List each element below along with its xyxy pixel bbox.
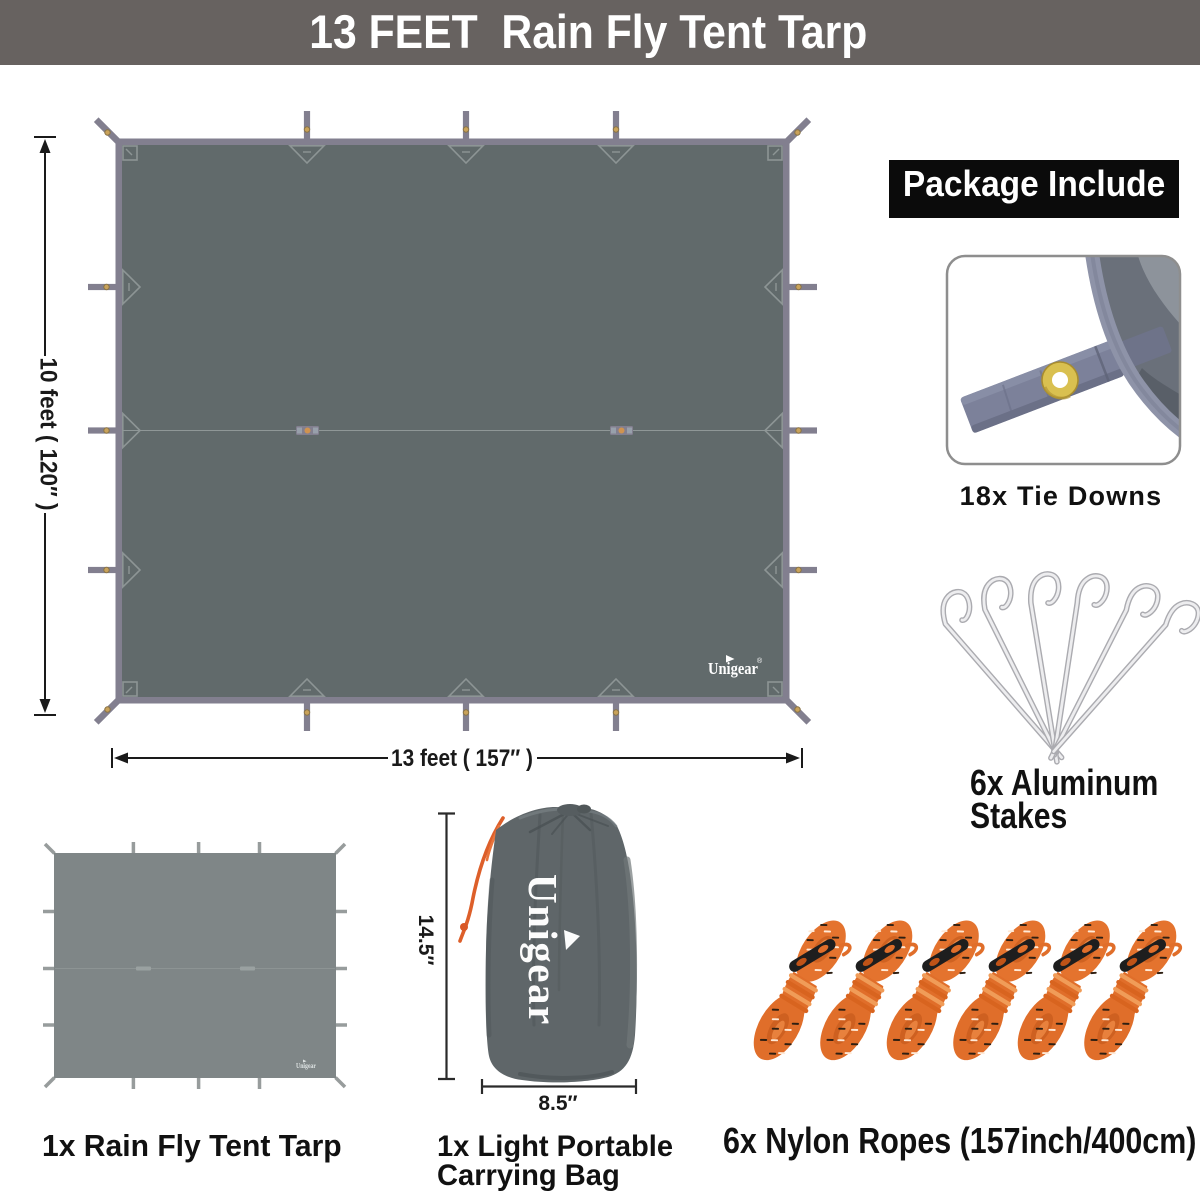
svg-text:®: ®: [757, 657, 763, 665]
svg-text:8.5″: 8.5″: [538, 1092, 577, 1115]
svg-text:10 feet ( 120″ ): 10 feet ( 120″ ): [35, 358, 62, 511]
svg-text:13 feet ( 157″ ): 13 feet ( 157″ ): [391, 745, 533, 772]
svg-text:Unigear: Unigear: [296, 1062, 316, 1070]
svg-text:Unigear: Unigear: [520, 874, 566, 1026]
svg-text:Unigear: Unigear: [708, 659, 758, 678]
svg-text:14.5″: 14.5″: [414, 915, 437, 966]
